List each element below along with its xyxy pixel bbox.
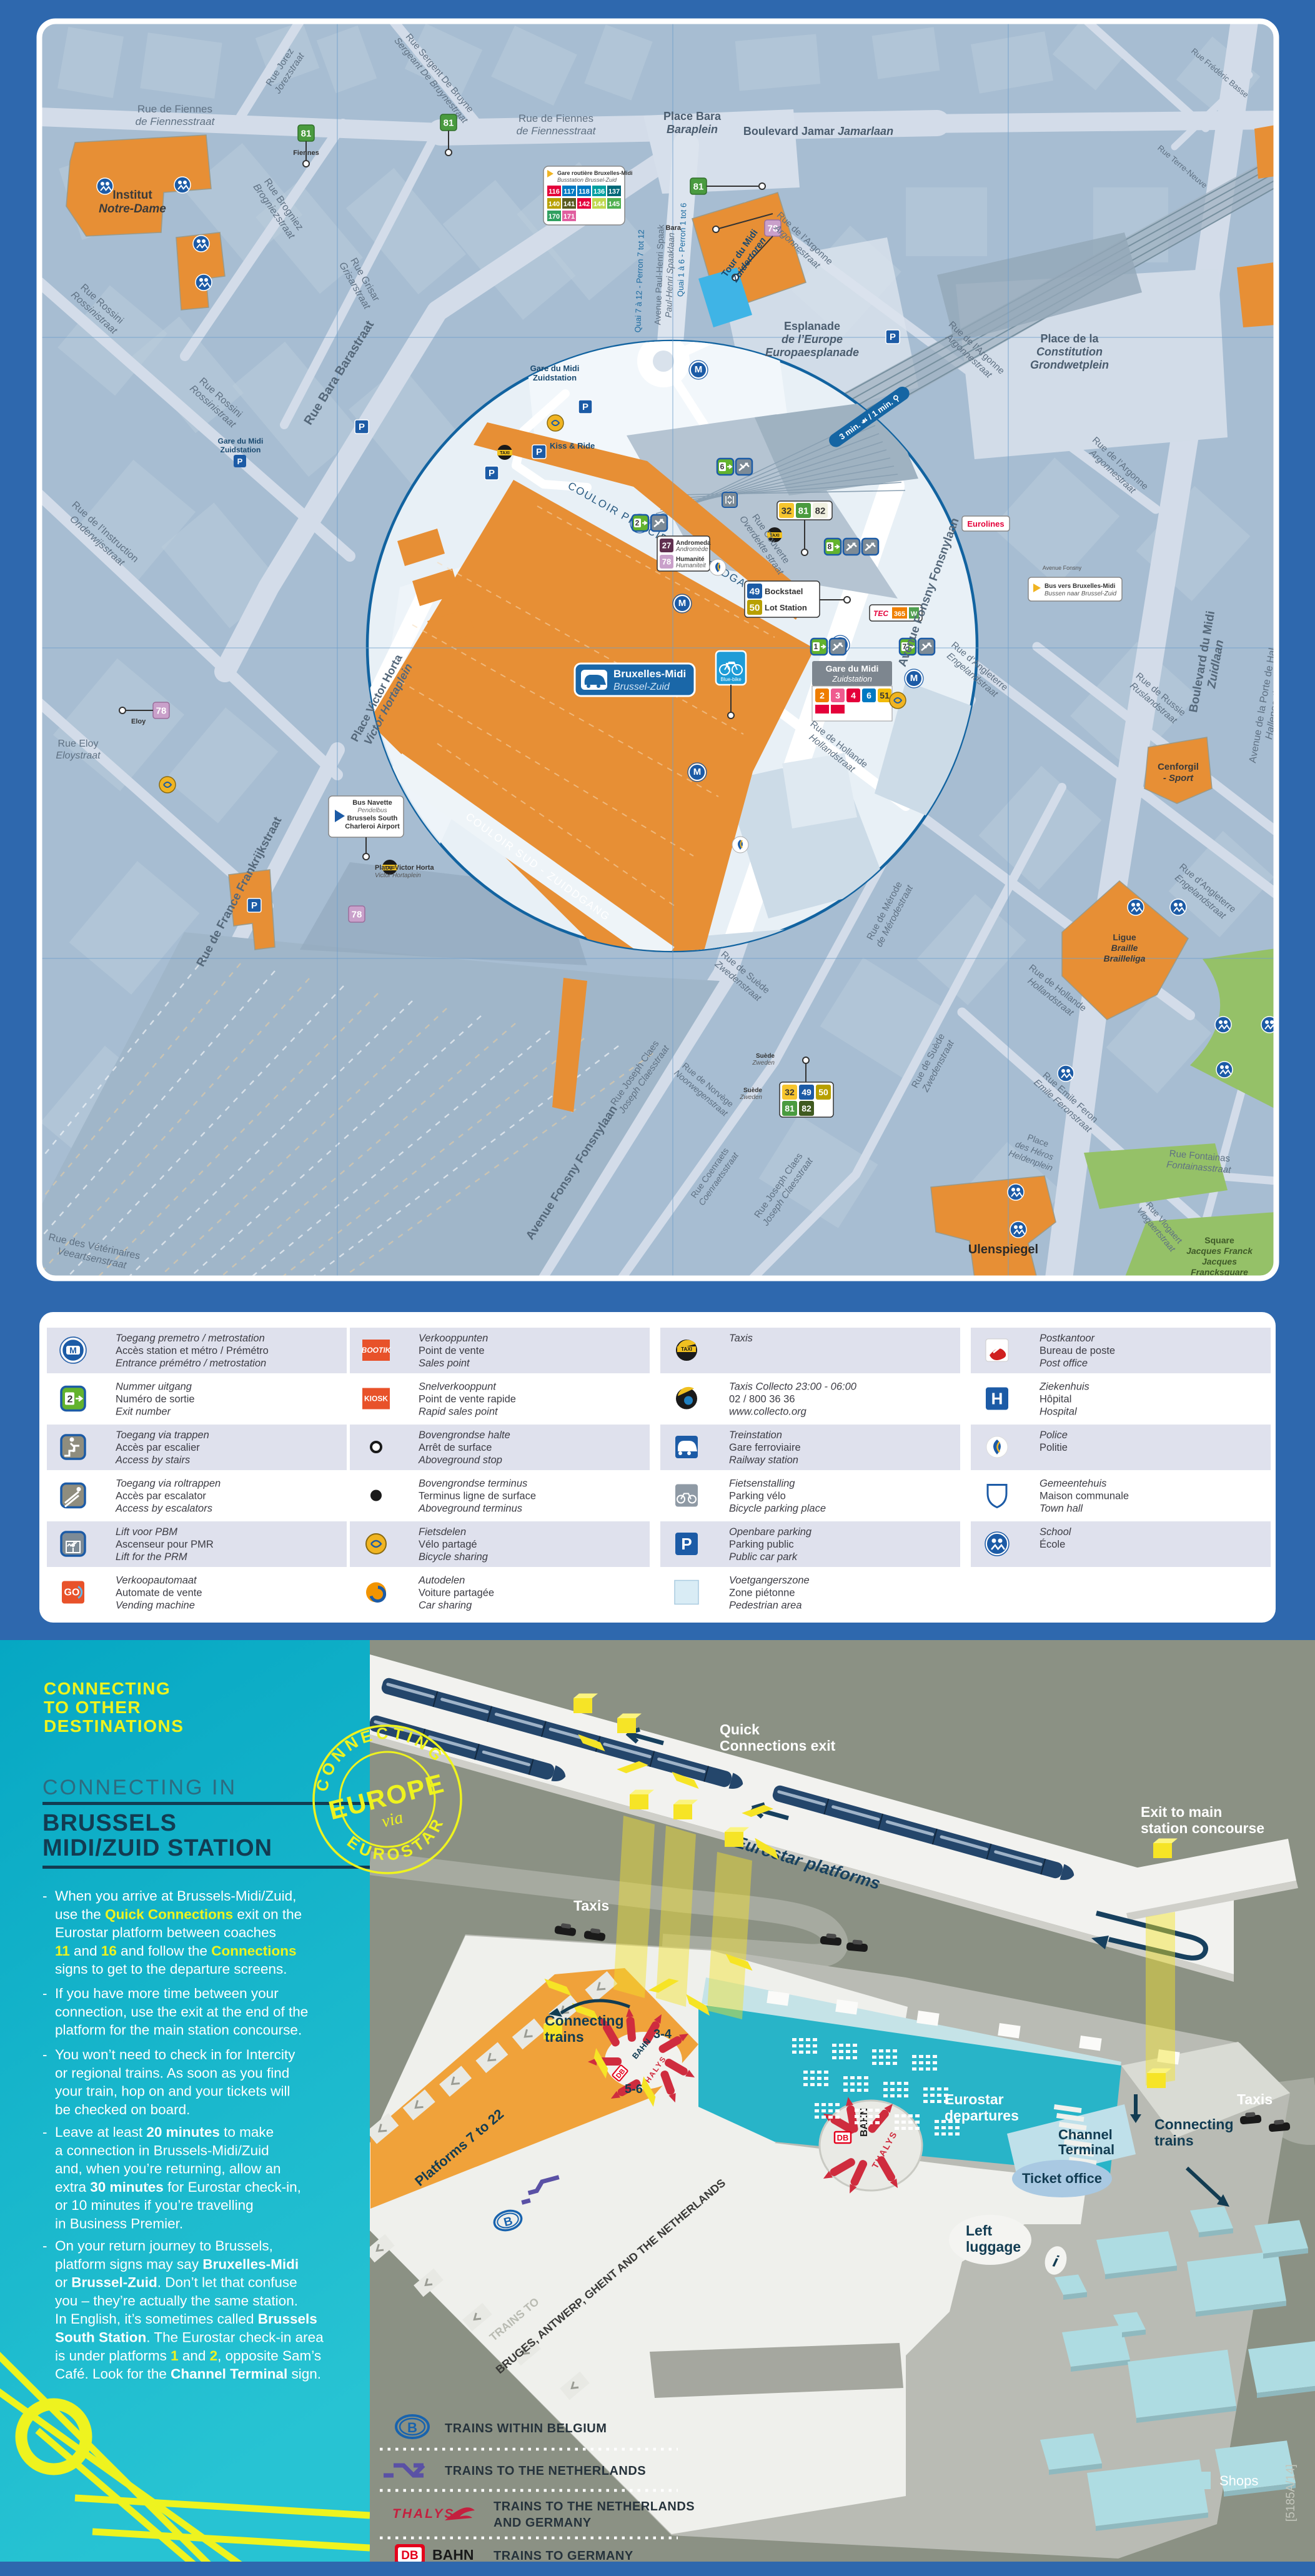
svg-text:THALYS: THALYS [392,2507,455,2521]
svg-text:Eurostar: Eurostar [945,2091,1004,2107]
svg-text:51: 51 [880,690,890,700]
svg-text:Eloy: Eloy [131,718,146,725]
svg-text:connection, use the exit at th: connection, use the exit at the end of t… [55,2004,308,2019]
svg-text:-: - [42,1986,47,2001]
svg-text:Braille: Braille [1111,943,1138,953]
svg-text:TAXI: TAXI [681,1346,692,1352]
svg-text:Toegang via trappen: Toegang via trappen [116,1430,209,1441]
svg-text:Gare du Midi: Gare du Midi [530,364,580,373]
svg-text:P: P [251,900,257,911]
svg-text:TO OTHER: TO OTHER [44,1698,141,1717]
svg-text:TRAINS TO THE NETHERLANDS: TRAINS TO THE NETHERLANDS [494,2500,695,2514]
svg-text:Suède: Suède [743,1087,762,1094]
svg-text:Taxis: Taxis [1237,2091,1273,2107]
svg-text:- Sport: - Sport [1163,773,1194,783]
svg-text:platform signs may say Bruxell: platform signs may say Bruxelles-Midi [55,2256,299,2272]
svg-text:Ulenspiegel: Ulenspiegel [968,1243,1038,1256]
svg-text:6: 6 [866,690,871,700]
svg-text:In English, it’s sometimes cal: In English, it’s sometimes called Brusse… [55,2311,317,2327]
svg-text:When you arrive at Brussels-Mi: When you arrive at Brussels-Midi/Zuid, [55,1888,296,1904]
svg-text:Jacques Franck: Jacques Franck [1186,1246,1253,1256]
svg-text:-: - [42,2238,47,2254]
svg-text:170: 170 [548,213,560,221]
svg-text:Ticket office: Ticket office [1022,2171,1102,2186]
svg-text:116: 116 [548,188,560,196]
svg-text:Brailleliga: Brailleliga [1104,953,1146,963]
svg-text:Zone piétonne: Zone piétonne [729,1588,795,1599]
svg-text:137: 137 [608,188,620,196]
svg-text:Accès par escalier: Accès par escalier [116,1442,200,1453]
svg-text:Sales point: Sales point [419,1358,470,1369]
svg-text:140: 140 [548,201,560,208]
svg-text:Voiture partagée: Voiture partagée [419,1588,494,1599]
svg-text:Suède: Suède [756,1053,775,1060]
svg-text:If you have more time between: If you have more time between your [55,1986,279,2001]
svg-text:DB: DB [401,2549,418,2562]
svg-text:de Fiennesstraat: de Fiennesstraat [136,116,216,127]
svg-text:Hospital: Hospital [1040,1406,1078,1418]
svg-text:Connecting: Connecting [1154,2116,1234,2132]
svg-text:Left: Left [966,2222,993,2239]
svg-text:[5185A/14]: [5185A/14] [1284,2464,1298,2522]
svg-text:Openbare parking: Openbare parking [729,1526,812,1538]
svg-text:117: 117 [563,188,575,196]
svg-text:Zuidstation: Zuidstation [221,445,261,454]
svg-text:Fietsdelen: Fietsdelen [419,1526,466,1538]
svg-text:Connections exit: Connections exit [720,1738,836,1754]
svg-text:Baraplein: Baraplein [667,123,718,136]
svg-text:Humaniteit: Humaniteit [676,562,707,569]
svg-text:81: 81 [785,1103,795,1113]
svg-text:Rue Eloy: Rue Eloy [58,738,99,749]
svg-text:32: 32 [785,1087,795,1097]
svg-text:Ziekenhuis: Ziekenhuis [1039,1381,1089,1393]
svg-text:Andromède: Andromède [675,546,708,553]
svg-text:Numéro de sortie: Numéro de sortie [116,1394,195,1405]
svg-text:trains: trains [1154,2132,1194,2149]
svg-text:Maison communale: Maison communale [1040,1491,1129,1502]
svg-text:-: - [42,1888,47,1904]
svg-text:Brussel-Zuid: Brussel-Zuid [613,682,670,692]
svg-text:Verkooppunten: Verkooppunten [419,1333,488,1344]
svg-text:Gare routière Bruxelles-Midi: Gare routière Bruxelles-Midi [557,170,633,176]
svg-text:49: 49 [750,586,760,597]
svg-text:Blue-bike: Blue-bike [720,677,742,682]
svg-text:Snelverkooppunt: Snelverkooppunt [419,1381,497,1393]
svg-text:Place de la: Place de la [1040,332,1099,345]
svg-text:a connection in Brussels-Midi/: a connection in Brussels-Midi/Zuid [55,2142,269,2158]
svg-text:School: School [1040,1526,1072,1538]
svg-text:Aboveground stop: Aboveground stop [418,1455,502,1466]
svg-text:Quick: Quick [720,1721,760,1738]
svg-text:platform for the main station: platform for the main station concourse. [55,2022,302,2038]
svg-text:be checked on board.: be checked on board. [55,2102,190,2117]
svg-text:You won’t need to check in for: You won’t need to check in for Intercity [55,2047,295,2062]
svg-text:Brussels South: Brussels South [347,815,398,822]
svg-text:South Station. The Eurostar ch: South Station. The Eurostar check-in are… [55,2330,324,2345]
svg-text:Pendelbus: Pendelbus [357,807,387,814]
svg-text:DESTINATIONS: DESTINATIONS [44,1716,184,1736]
svg-text:Constitution: Constitution [1036,346,1103,358]
svg-text:32: 32 [782,505,792,516]
svg-text:Arrêt de surface: Arrêt de surface [419,1442,492,1453]
svg-text:Ligue: Ligue [1113,932,1136,942]
svg-text:Institut: Institut [112,189,152,202]
svg-text:Charleroi Airport: Charleroi Airport [345,823,400,830]
svg-text:78: 78 [156,705,167,716]
svg-text:Point de vente: Point de vente [419,1345,485,1356]
svg-text:Accès par escalator: Accès par escalator [116,1491,206,1502]
svg-text:-: - [42,2124,47,2140]
svg-text:Police: Police [1040,1430,1068,1441]
svg-text:Gare du Midi: Gare du Midi [826,664,879,674]
svg-text:81: 81 [798,505,809,516]
svg-text:142: 142 [578,201,590,208]
svg-text:Lot Station: Lot Station [765,603,807,612]
svg-text:Toegang premetro / metrostatio: Toegang premetro / metrostation [116,1333,265,1344]
svg-text:Parking public: Parking public [729,1539,794,1550]
svg-text:Square: Square [1204,1235,1234,1245]
svg-text:Accès station et métro / Prémé: Accès station et métro / Prémétro [116,1345,269,1356]
svg-text:78: 78 [662,557,671,567]
svg-text:P: P [890,332,896,342]
svg-text:Fietsenstalling: Fietsenstalling [729,1478,795,1489]
svg-text:B: B [407,2420,417,2435]
svg-text:and, when you’re returning, al: and, when you’re returning, allow an [55,2161,280,2177]
svg-text:Public car park: Public car park [729,1551,798,1563]
svg-text:Gare du Midi: Gare du Midi [218,437,264,445]
svg-text:or regional trains. As soon as: or regional trains. As soon as you find [55,2065,289,2081]
svg-text:Eloystraat: Eloystraat [56,750,101,761]
svg-text:Boulevard Jamar Jamarlaan: Boulevard Jamar Jamarlaan [743,125,893,137]
svg-text:École: École [1040,1538,1065,1550]
svg-text:P: P [681,1534,692,1553]
svg-text:82: 82 [815,505,826,516]
svg-text:Zweden: Zweden [739,1094,762,1101]
svg-text:Zweden: Zweden [752,1060,775,1067]
svg-text:TEC: TEC [873,609,888,618]
svg-text:Vending machine: Vending machine [116,1600,195,1611]
svg-text:CONNECTING: CONNECTING [44,1679,171,1698]
svg-text:Parking vélo: Parking vélo [729,1491,786,1502]
svg-text:8: 8 [828,542,832,551]
svg-text:3-4: 3-4 [653,2027,672,2041]
svg-text:Zuidstation: Zuidstation [533,373,577,382]
svg-text:Post office: Post office [1040,1358,1088,1369]
svg-text:Europaesplanade: Europaesplanade [765,346,859,359]
svg-text:M: M [69,1345,77,1355]
svg-text:02 / 800 36 36: 02 / 800 36 36 [729,1394,795,1405]
svg-text:3: 3 [835,690,840,700]
svg-text:81: 81 [444,117,454,128]
svg-text:Zuidstation: Zuidstation [831,674,872,684]
svg-text:KIOSK: KIOSK [364,1395,388,1403]
svg-text:P: P [582,402,588,412]
svg-text:5-6: 5-6 [625,2082,643,2096]
svg-text:luggage: luggage [966,2239,1021,2255]
svg-text:Hôpital: Hôpital [1040,1394,1071,1405]
svg-text:Bureau de poste: Bureau de poste [1040,1345,1115,1356]
svg-text:in Business Premier.: in Business Premier. [55,2216,183,2232]
svg-text:11 and 16 and follow the Conne: 11 and 16 and follow the Connections [55,1943,297,1959]
svg-text:Avenue Fonsny: Avenue Fonsny [1043,565,1082,571]
svg-text:Gare ferroviaire: Gare ferroviaire [729,1442,801,1453]
svg-text:Jacques: Jacques [1202,1256,1237,1266]
svg-text:P: P [359,422,365,432]
svg-text:-: - [42,2047,47,2062]
svg-text:CONNECTING IN: CONNECTING IN [42,1776,237,1799]
svg-text:Entrance prémétro / metrostati: Entrance prémétro / metrostation [116,1358,266,1369]
svg-text:Kiss & Ride: Kiss & Ride [550,441,595,450]
svg-text:Bus vers Bruxelles-Midi: Bus vers Bruxelles-Midi [1045,583,1116,590]
svg-text:82: 82 [801,1103,811,1113]
svg-text:Access by stairs: Access by stairs [115,1455,190,1466]
svg-text:Eurolines: Eurolines [967,519,1004,529]
svg-text:H: H [991,1390,1003,1408]
svg-text:Bussen naar Brussel-Zuid: Bussen naar Brussel-Zuid [1045,590,1116,597]
svg-text:2: 2 [67,1395,73,1405]
svg-text:Bockstael: Bockstael [765,587,803,596]
svg-text:Taxis: Taxis [573,1897,609,1914]
svg-text:Lift for the PRM: Lift for the PRM [116,1551,187,1563]
svg-text:1: 1 [814,642,818,651]
svg-text:Bruxelles-Midi: Bruxelles-Midi [613,668,686,680]
svg-text:M: M [693,767,702,777]
svg-text:Notre-Dame: Notre-Dame [99,202,166,216]
svg-text:Lift voor PBM: Lift voor PBM [116,1526,177,1538]
svg-text:Exit to main: Exit to main [1141,1804,1222,1820]
svg-text:Channel: Channel [1058,2127,1113,2142]
svg-text:Victor Hortaplein: Victor Hortaplein [375,872,421,879]
svg-text:your train, hop on and your ti: your train, hop on and your tickets will [55,2084,290,2099]
svg-text:P: P [536,447,542,457]
svg-text:Town hall: Town hall [1040,1503,1083,1514]
svg-text:BOOTIK: BOOTIK [362,1346,392,1355]
svg-text:Politie: Politie [1040,1442,1068,1453]
svg-text:or Brussel-Zuid. Don’t let tha: or Brussel-Zuid. Don’t let that confuse [55,2275,297,2290]
svg-text:Point de vente rapide: Point de vente rapide [419,1394,516,1405]
svg-text:Aboveground terminus: Aboveground terminus [418,1503,522,1514]
svg-text:144: 144 [593,201,605,208]
svg-text:78: 78 [352,909,362,920]
svg-text:TRAINS WITHIN BELGIUM: TRAINS WITHIN BELGIUM [445,2422,607,2435]
svg-text:Rapid sales point: Rapid sales point [419,1406,499,1418]
svg-text:is under platforms 1 and 2, op: is under platforms 1 and 2, opposite Sam… [55,2348,321,2364]
svg-text:Postkantoor: Postkantoor [1040,1333,1096,1344]
svg-text:Busstation Brussel-Zuid: Busstation Brussel-Zuid [557,177,617,183]
svg-text:Café. Look for the Channel Ter: Café. Look for the Channel Terminal sign… [55,2366,321,2382]
svg-text:Autodelen: Autodelen [418,1575,465,1586]
svg-text:4: 4 [851,690,856,700]
svg-text:2: 2 [820,690,825,700]
svg-text:Access by escalators: Access by escalators [115,1503,212,1514]
svg-text:Leave at least 20 minutes to m: Leave at least 20 minutes to make [55,2124,274,2140]
svg-text:MIDI/ZUID STATION: MIDI/ZUID STATION [42,1835,272,1861]
svg-text:Place Victor Horta: Place Victor Horta [375,864,434,872]
svg-text:TRAINS TO THE NETHERLANDS: TRAINS TO THE NETHERLANDS [445,2464,646,2478]
svg-text:DB: DB [837,2133,849,2142]
svg-text:Cenforgil: Cenforgil [1158,762,1199,772]
svg-text:Taxis Collecto 23:00 - 06:00: Taxis Collecto 23:00 - 06:00 [729,1381,857,1393]
svg-text:Ascenseur pour PMR: Ascenseur pour PMR [116,1539,214,1550]
svg-text:Rue de Fiennes: Rue de Fiennes [519,112,593,124]
svg-text:extra 30 minutes for Eurostar: extra 30 minutes for Eurostar check-in, [55,2179,301,2195]
svg-text:Car sharing: Car sharing [419,1600,472,1611]
svg-text:Nummer uitgang: Nummer uitgang [116,1381,192,1393]
svg-text:BRUSSELS: BRUSSELS [42,1810,177,1836]
svg-text:Grondwetplein: Grondwetplein [1030,359,1109,371]
svg-text:Pedestrian area: Pedestrian area [729,1600,802,1611]
svg-text:81: 81 [693,181,704,192]
svg-text:Bovengrondse halte: Bovengrondse halte [419,1430,510,1441]
svg-text:Esplanade: Esplanade [784,320,840,332]
svg-text:On your return journey to Brus: On your return journey to Brussels, [55,2238,273,2254]
svg-text:6: 6 [720,462,725,471]
svg-text:Vélo partagé: Vélo partagé [419,1539,477,1550]
svg-text:171: 171 [563,213,575,221]
svg-text:Automate de vente: Automate de vente [116,1588,202,1599]
svg-text:de l’Europe: de l’Europe [782,333,843,346]
svg-text:BAHN: BAHN [432,2547,474,2563]
svg-text:departures: departures [945,2107,1019,2124]
svg-text:50: 50 [818,1087,828,1097]
svg-text:Gemeentehuis: Gemeentehuis [1040,1478,1106,1489]
svg-text:TAXI: TAXI [500,451,509,455]
svg-text:145: 145 [608,201,620,208]
svg-text:station concourse: station concourse [1141,1820,1264,1836]
svg-text:Exit number: Exit number [116,1406,172,1418]
svg-text:you – they’re actually the sam: you – they’re actually the same station. [55,2293,298,2309]
svg-text:Voetgangerszone: Voetgangerszone [729,1575,810,1586]
svg-text:50: 50 [750,602,760,613]
svg-text:Bicycle sharing: Bicycle sharing [419,1551,489,1563]
svg-text:AND GERMANY: AND GERMANY [494,2516,592,2530]
svg-text:Bovengrondse terminus: Bovengrondse terminus [419,1478,527,1489]
svg-text:49: 49 [801,1087,811,1097]
svg-text:Fiennes: Fiennes [293,149,319,157]
svg-text:118: 118 [578,188,590,196]
svg-text:use the Quick Connections exit: use the Quick Connections exit on the [55,1906,302,1922]
svg-text:Shops: Shops [1219,2473,1258,2489]
svg-text:TRAINS TO GERMANY: TRAINS TO GERMANY [494,2549,633,2563]
svg-text:M: M [695,364,703,375]
svg-text:136: 136 [593,188,605,196]
svg-text:141: 141 [563,201,575,208]
svg-text:Terminal: Terminal [1058,2142,1114,2157]
svg-text:P: P [237,457,243,466]
svg-text:Verkoopautomaat: Verkoopautomaat [116,1575,197,1586]
svg-text:de Fiennesstraat: de Fiennesstraat [517,125,597,137]
svg-text:P: P [489,468,495,479]
svg-text:or 10 minutes if you’re travel: or 10 minutes if you’re travelling [55,2197,254,2213]
svg-text:Toegang via roltrappen: Toegang via roltrappen [116,1478,221,1489]
svg-text:signs to get to the departure: signs to get to the departure screens. [55,1961,287,1977]
svg-text:Railway station: Railway station [729,1455,798,1466]
svg-text:27: 27 [662,541,671,550]
svg-text:Bus Navette: Bus Navette [352,799,392,807]
svg-text:Bicycle parking place: Bicycle parking place [729,1503,826,1514]
svg-text:Taxis: Taxis [729,1333,753,1344]
svg-text:GO: GO [64,1588,80,1598]
svg-text:Rue de Fiennes: Rue de Fiennes [137,103,212,115]
svg-text:2: 2 [635,519,640,527]
svg-text:www.collecto.org: www.collecto.org [729,1406,807,1418]
svg-text:M: M [678,598,687,609]
svg-text:trains: trains [545,2029,584,2045]
svg-text:M: M [910,673,918,684]
svg-text:81: 81 [301,128,312,139]
svg-text:Treinstation: Treinstation [729,1430,782,1441]
svg-text:Eurostar platform between coac: Eurostar platform between coaches [55,1925,276,1941]
svg-text:Terminus ligne de surface: Terminus ligne de surface [419,1491,536,1502]
svg-text:365: 365 [894,610,905,618]
svg-text:Place Bara: Place Bara [663,110,722,122]
